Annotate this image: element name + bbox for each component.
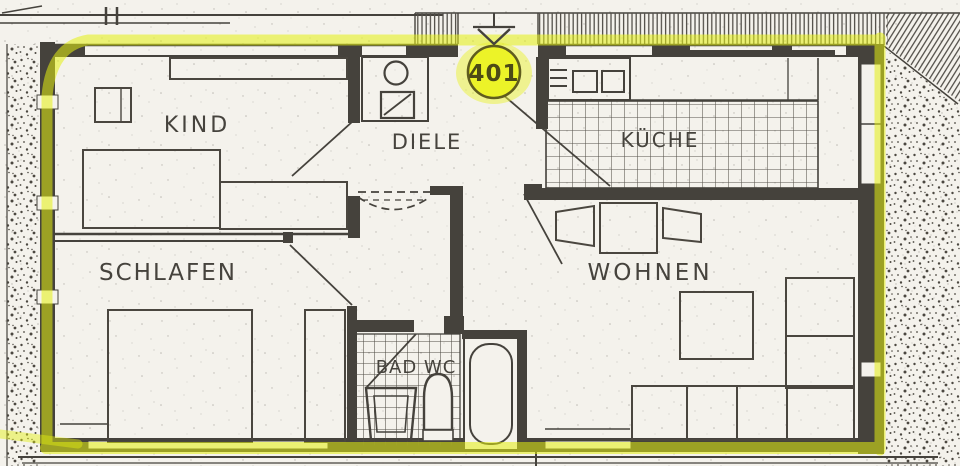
room-label-kind: KIND	[164, 113, 230, 138]
room-label-diele: DIELE	[392, 130, 463, 154]
ground-stipple-right	[886, 50, 960, 466]
bathroom-fittings	[354, 334, 518, 450]
room-label-bad-wc: BAD WC	[376, 357, 457, 378]
toilet-icon	[423, 374, 453, 441]
floorplan-drawing: 401 KIND DIELE KÜCHE SCHLAFEN WOHNEN BAD…	[0, 0, 960, 466]
bathtub-icon	[464, 338, 518, 450]
unit-number: 401	[468, 61, 519, 87]
room-label-kueche: KÜCHE	[621, 128, 700, 152]
room-label-schlafen: SCHLAFEN	[99, 260, 237, 286]
room-label-wohnen: WOHNEN	[587, 260, 712, 286]
ground-stipple-left	[6, 44, 38, 466]
floorplan-scan: 401 KIND DIELE KÜCHE SCHLAFEN WOHNEN BAD…	[0, 0, 960, 466]
